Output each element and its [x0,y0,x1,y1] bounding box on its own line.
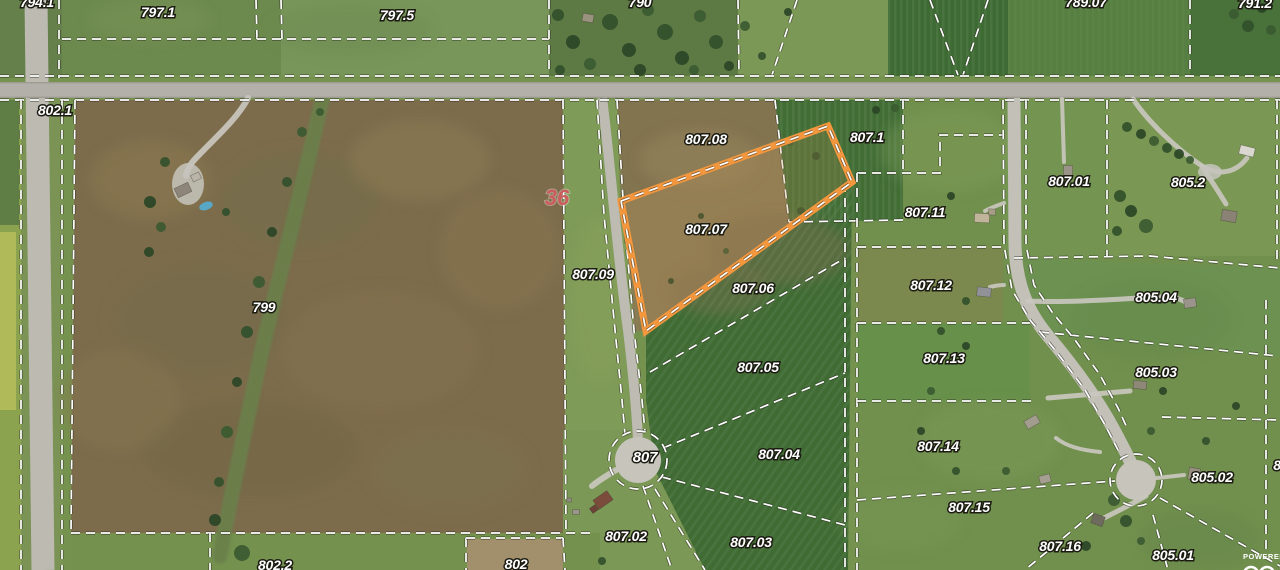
parcel-label-807-02[interactable]: 807.02 [605,528,647,544]
road-edge [0,97,1280,98]
parcel-label-802[interactable]: 802 [505,556,528,570]
tree [316,108,324,116]
parcel-label-805-2[interactable]: 805.2 [1171,174,1205,190]
tree [1149,136,1159,146]
tree [709,35,723,49]
tree [552,9,564,21]
parcel-boundary [256,0,257,39]
map-viewport[interactable]: 794.1797.1797.5790789.07791.2802.1799802… [0,0,1280,570]
road-main-east-west [0,82,1280,98]
tree [156,222,166,232]
tree [962,297,970,305]
parcel-label-807-15[interactable]: 807.15 [948,499,990,515]
field-mottle [370,425,530,515]
tree [144,247,154,257]
tree [1232,402,1240,410]
tree [622,43,636,57]
tree [872,106,880,114]
parcel-label-807-06[interactable]: 807.06 [732,280,774,296]
tree [598,557,606,565]
parcel-label-805-02[interactable]: 805.02 [1191,469,1233,485]
tree [634,64,646,76]
building [1221,209,1238,222]
parcel-label-805-01[interactable]: 805.01 [1152,547,1194,563]
parcel-map[interactable]: 794.1797.1797.5790789.07791.2802.1799802… [0,0,1280,570]
tree [689,65,699,75]
attribution-text: POWERED [1243,552,1280,561]
tree [952,467,960,475]
tree [694,10,706,22]
parcel-label-807-16[interactable]: 807.16 [1039,538,1081,554]
parcel-boundary [281,0,282,39]
field-mottle [280,290,480,410]
tree [1174,149,1184,159]
parcel-label-802-1[interactable]: 802.1 [38,102,72,118]
tree [1139,219,1153,233]
tree [222,208,230,216]
tree [1081,541,1091,551]
tree [241,326,253,338]
tree [724,61,734,71]
tree [962,342,970,350]
building [977,287,992,297]
tree [917,427,925,435]
tree [947,192,955,200]
building [974,213,989,223]
parcel-label-789-07[interactable]: 789.07 [1065,0,1108,10]
parcel-label-807-14[interactable]: 807.14 [917,438,959,454]
field-mottle [440,190,560,310]
parcel-label-807-05[interactable]: 807.05 [737,359,779,375]
tree [1114,190,1126,202]
parcel-label-807-03[interactable]: 807.03 [730,534,772,550]
tree [584,58,596,70]
tree [937,327,945,335]
building [988,209,995,215]
parcel-label-805-04[interactable]: 805.04 [1135,289,1177,305]
parcel-label-807[interactable]: 807 [633,449,658,466]
tree [758,52,766,60]
parcel-label-8[interactable]: 8 [1273,457,1280,473]
tree [1159,387,1167,395]
driveway [990,285,1004,287]
parcel-label-807-08[interactable]: 807.08 [685,131,727,147]
parcel-label-807-12[interactable]: 807.12 [910,277,952,293]
parcel-label-807-1[interactable]: 807.1 [850,129,884,145]
parcel-label-794-1[interactable]: 794.1 [20,0,54,10]
tree [927,387,935,395]
tree [1186,156,1194,164]
tree [282,177,292,187]
parcel-label-807-07[interactable]: 807.07 [685,221,728,237]
parcel-label-797-1[interactable]: 797.1 [141,4,175,20]
tree [566,35,580,49]
tree [891,104,899,112]
parcel-label-807-01[interactable]: 807.01 [1048,173,1090,189]
tree [1120,515,1132,527]
parcel-label-802-2[interactable]: 802.2 [258,557,292,570]
tree [1125,205,1137,217]
tree [1202,437,1210,445]
parcel-label-805-03[interactable]: 805.03 [1135,364,1177,380]
field-patch [0,232,16,410]
tree [1112,226,1122,236]
parcel-label-807-04[interactable]: 807.04 [758,446,800,462]
parcel-label-807-11[interactable]: 807.11 [905,204,946,220]
tree [1147,427,1155,435]
tree [297,127,307,137]
field-mottle [60,350,180,450]
cul-de-sac [1116,460,1156,500]
tree [1136,129,1146,139]
building [1133,380,1147,389]
tree [602,14,618,30]
parcel-label-799[interactable]: 799 [253,299,276,315]
tree [1122,122,1132,132]
tree [160,157,170,167]
tree [1002,467,1010,475]
building [582,13,594,23]
parcel-label-791-2[interactable]: 791.2 [1238,0,1272,11]
tree [209,514,221,526]
parcel-label-807-13[interactable]: 807.13 [923,350,965,366]
section-number-label: 36 [545,185,570,210]
tree [1137,537,1145,545]
tree [1162,143,1172,153]
tree [675,51,689,65]
tree [234,545,250,561]
tree [221,426,233,438]
building [1183,298,1196,309]
tree [253,276,265,288]
driveway [1062,99,1064,162]
tree [232,377,242,387]
building [573,510,580,515]
tree [1242,20,1254,32]
tree [555,65,565,75]
tree [1266,25,1276,35]
tree [740,21,750,31]
tree [144,196,156,208]
tree [267,227,277,237]
tree [214,477,224,487]
field-patch [738,0,888,76]
crop-rows [888,0,1008,76]
parcel-label-790[interactable]: 790 [629,0,652,10]
road-edge [0,82,1280,83]
field-mottle [350,120,490,200]
field-patch [0,100,19,225]
tree [657,24,673,40]
crop-rows [1008,0,1190,76]
parcel-label-807-09[interactable]: 807.09 [572,266,614,282]
parcel-label-797-5[interactable]: 797.5 [380,7,414,23]
